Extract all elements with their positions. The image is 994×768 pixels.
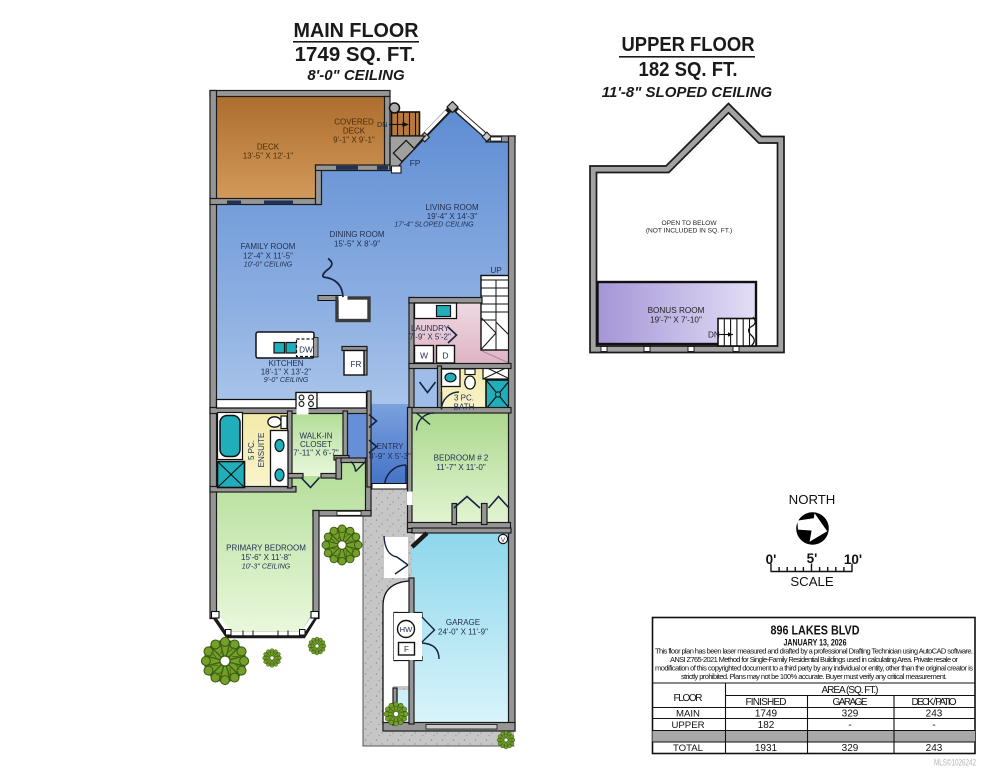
svg-text:8'-0" CEILING: 8'-0" CEILING (307, 67, 405, 84)
svg-text:V: V (501, 537, 506, 544)
svg-text:17'-4" SLOPED CEILING: 17'-4" SLOPED CEILING (394, 221, 474, 229)
svg-text:243: 243 (926, 743, 943, 754)
svg-text:9'-1" X 9'-1": 9'-1" X 9'-1" (333, 136, 375, 145)
svg-text:SCALE: SCALE (790, 574, 833, 589)
svg-text:PRIMARY BEDROOM: PRIMARY BEDROOM (226, 544, 306, 553)
svg-text:UPPER: UPPER (671, 720, 704, 731)
svg-text:D: D (442, 351, 448, 361)
svg-text:MAIN: MAIN (676, 709, 700, 720)
svg-text:MLS©1026242: MLS©1026242 (934, 758, 976, 768)
svg-text:COVERED: COVERED (334, 118, 374, 127)
svg-text:7'-11" X 6'-7": 7'-11" X 6'-7" (293, 449, 339, 458)
svg-text:9'-0" CEILING: 9'-0" CEILING (264, 376, 309, 384)
svg-text:19'-7" X 7'-10": 19'-7" X 7'-10" (650, 316, 702, 325)
svg-text:GARAGE: GARAGE (833, 697, 868, 708)
svg-text:BEDROOM # 2: BEDROOM # 2 (434, 454, 489, 463)
svg-text:-: - (932, 720, 935, 731)
svg-text:329: 329 (842, 743, 859, 754)
svg-text:W: W (420, 351, 429, 361)
svg-text:FR: FR (351, 360, 362, 369)
svg-text:DECK: DECK (343, 127, 366, 136)
svg-text:TOTAL: TOTAL (673, 743, 704, 754)
svg-text:1931: 1931 (755, 743, 778, 754)
svg-text:DN: DN (708, 331, 720, 340)
svg-text:HW: HW (400, 625, 413, 634)
svg-text:15'-6" X 11'-8": 15'-6" X 11'-8" (241, 553, 291, 562)
svg-text:5 PC.: 5 PC. (247, 440, 256, 460)
svg-text:FAMILY ROOM: FAMILY ROOM (241, 242, 296, 251)
svg-text:-: - (848, 720, 851, 731)
svg-text:11'-7" X 11'-0": 11'-7" X 11'-0" (436, 463, 486, 472)
svg-text:DN: DN (377, 120, 387, 129)
svg-text:UP: UP (490, 266, 502, 275)
svg-text:11'-8" SLOPED CEILING: 11'-8" SLOPED CEILING (602, 84, 773, 101)
svg-text:LIVING ROOM: LIVING ROOM (425, 203, 479, 212)
svg-text:896 LAKES BLVD: 896 LAKES BLVD (771, 623, 860, 638)
svg-text:DW: DW (299, 346, 313, 355)
svg-text:BONUS ROOM: BONUS ROOM (648, 306, 705, 315)
svg-text:243: 243 (926, 709, 943, 720)
svg-text:FLOOR: FLOOR (674, 693, 703, 704)
svg-text:strictly prohibited. Plans may: strictly prohibited. Plans may not be 10… (681, 672, 947, 681)
svg-text:DECK: DECK (257, 143, 280, 152)
svg-text:329: 329 (842, 709, 859, 720)
svg-text:12'-4" X 11'-5": 12'-4" X 11'-5" (243, 252, 293, 261)
svg-text:182 SQ. FT.: 182 SQ. FT. (639, 58, 738, 81)
svg-text:3 PC.: 3 PC. (454, 394, 474, 403)
svg-text:10'-0" CEILING: 10'-0" CEILING (244, 261, 293, 269)
svg-text:BATH: BATH (454, 403, 475, 412)
svg-text:GARAGE: GARAGE (446, 618, 480, 627)
svg-text:10'-3" CEILING: 10'-3" CEILING (242, 563, 291, 571)
svg-text:AREA (SQ. FT.): AREA (SQ. FT.) (822, 685, 879, 696)
svg-text:ENTRY: ENTRY (377, 442, 405, 451)
svg-text:10': 10' (844, 552, 862, 567)
svg-text:7'-9" X 5'-2": 7'-9" X 5'-2" (409, 333, 451, 342)
svg-text:MAIN FLOOR: MAIN FLOOR (294, 19, 419, 42)
svg-text:1749: 1749 (755, 709, 778, 720)
svg-text:1749 SQ. FT.: 1749 SQ. FT. (295, 43, 416, 66)
svg-text:OPEN TO BELOW: OPEN TO BELOW (661, 220, 717, 227)
svg-text:13'-5" X 12'-1": 13'-5" X 12'-1" (243, 152, 294, 161)
svg-text:8'-9" X 5'-3": 8'-9" X 5'-3" (369, 452, 411, 461)
svg-text:182: 182 (758, 720, 775, 731)
svg-text:FINISHED: FINISHED (746, 697, 787, 708)
svg-text:F: F (404, 645, 409, 654)
svg-text:DINING ROOM: DINING ROOM (329, 230, 384, 239)
svg-text:FP: FP (410, 158, 421, 168)
svg-text:ENSUITE: ENSUITE (257, 433, 266, 468)
svg-text:24'-0" X 11'-9": 24'-0" X 11'-9" (438, 628, 488, 637)
svg-text:NORTH: NORTH (789, 492, 836, 507)
svg-text:(NOT INCLUDED IN SQ. FT.): (NOT INCLUDED IN SQ. FT.) (646, 228, 732, 235)
svg-text:DECK / PATIO: DECK / PATIO (912, 697, 957, 708)
svg-text:UPPER FLOOR: UPPER FLOOR (622, 33, 755, 56)
svg-text:15'-5" X 8'-9": 15'-5" X 8'-9" (334, 240, 380, 249)
